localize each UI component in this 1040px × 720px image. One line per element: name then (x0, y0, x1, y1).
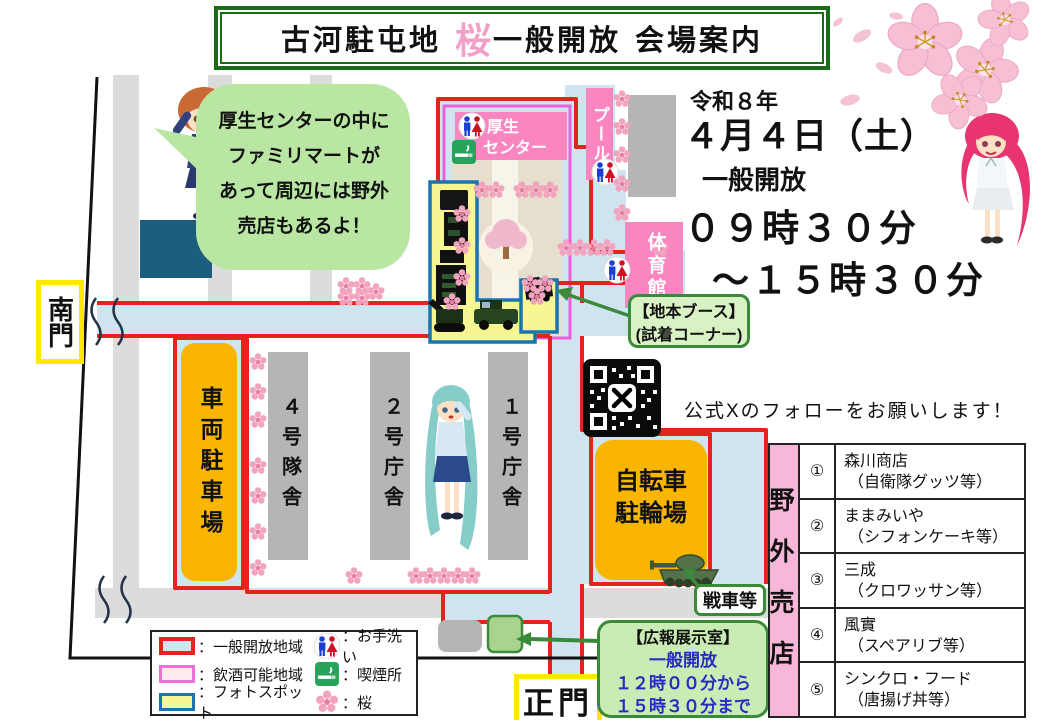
pr-room-callout: 【広報展示室】 一般開放 １２時００分から １５時３０分まで (597, 620, 769, 718)
label-bldg2: ２号庁舎 (376, 356, 408, 556)
event-time-start: ０９時３０分 (684, 198, 918, 252)
mascot-red-hair (961, 113, 1030, 246)
label-bldg1: １号庁舎 (494, 356, 526, 556)
photo-spot-swatch (159, 693, 195, 711)
table-row: ⑤ シンクロ・フード （唐揚げ丼等） (800, 663, 1024, 716)
open-area-swatch (159, 637, 195, 655)
gray-building-1 (628, 95, 676, 197)
title-sakura: 桜 (455, 12, 491, 64)
mascot-teal-hair (425, 385, 477, 550)
smoking-area-icon (314, 661, 340, 687)
pr-room-building (488, 616, 522, 652)
south-gate-label: 南門 (36, 280, 84, 364)
table-row: ② ままみいや （シフォンケーキ等） (800, 500, 1024, 555)
restroom-icon (314, 633, 340, 659)
event-map-poster: 古河駐屯地 桜 一般開放 会場案内 令和８年 ４月４日（土） 一般開放 ０９時３… (0, 0, 1040, 720)
main-gate-label: 正門 (514, 674, 602, 720)
qr-code (583, 359, 661, 437)
title-part1: 古河駐屯地 (281, 17, 441, 59)
qr-caption: 公式Xのフォローをお願いします！ (684, 396, 1014, 423)
event-date: ４月４日（土） (684, 108, 936, 159)
label-vehicle-parking: 車両駐車場 (188, 352, 232, 574)
drinking-area-swatch (159, 665, 195, 683)
event-time-end: ～１５時３０分 (712, 250, 985, 304)
sakura-icon (314, 689, 340, 715)
title-part3: 会場案内 (635, 17, 763, 59)
title-part2: 一般開放 (493, 17, 621, 59)
table-row: ④ 風實 （スペアリブ等） (800, 609, 1024, 664)
title-inner-border: 古河駐屯地 桜 一般開放 会場案内 (220, 12, 824, 64)
label-bicycle-parking: 自転車 駐輪場 (595, 466, 707, 530)
label-pool: プール (586, 90, 613, 178)
speech-bubble-text: 厚生センターの中に ファミリマートが あって周辺には野外 売店もあるよ！ (202, 104, 406, 244)
label-bldg4: ４号隊舎 (274, 356, 306, 556)
jihon-booth-callout: 【地本ブース】 (試着コーナー) (628, 294, 750, 348)
legend-row-open-area: ：一般開放地域 ：お手洗い (152, 632, 416, 660)
table-row: ③ 三成 （クロワッサン等） (800, 554, 1024, 609)
shops-header: 野外売店 (770, 445, 800, 716)
gray-building-2 (438, 620, 482, 652)
label-gym: 体育館 (634, 228, 676, 304)
title-banner: 古河駐屯地 桜 一般開放 会場案内 (214, 6, 830, 70)
tank-callout: 戦車等 (694, 584, 766, 616)
shops-rows: ① 森川商店 （自衛隊グッツ等） ② ままみいや （シフォンケーキ等） ③ 三成… (800, 445, 1024, 716)
table-row: ① 森川商店 （自衛隊グッツ等） (800, 445, 1024, 500)
label-welfare-center: 厚生 センター (487, 117, 567, 159)
outdoor-shops-table: 野外売店 ① 森川商店 （自衛隊グッツ等） ② ままみいや （シフォンケーキ等）… (768, 443, 1026, 718)
legend: ：一般開放地域 ：お手洗い ：飲酒可能地域 ：喫煙所 ：フォトスポット ：桜 (150, 630, 418, 716)
event-open-label: 一般開放 (702, 160, 806, 197)
legend-row-photo-spot: ：フォトスポット ：桜 (152, 688, 416, 716)
